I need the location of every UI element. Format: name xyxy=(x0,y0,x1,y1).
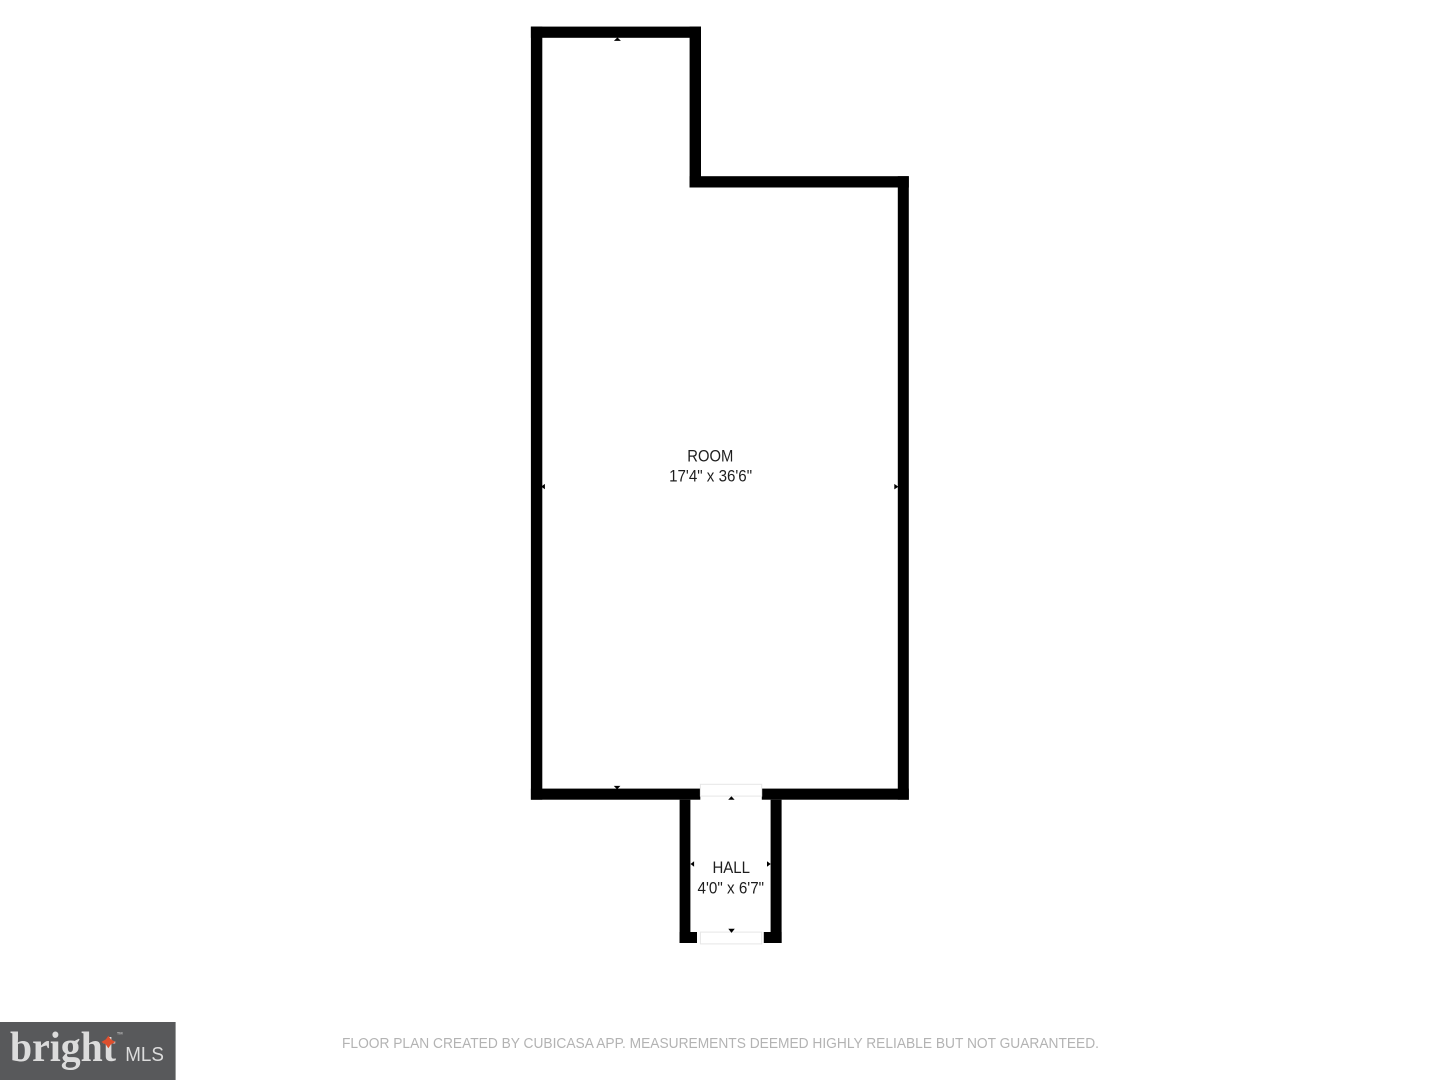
svg-text:bright: bright xyxy=(10,1025,116,1071)
svg-text:MLS: MLS xyxy=(125,1044,164,1066)
svg-text:HALL: HALL xyxy=(712,859,750,877)
svg-text:17'4" x 36'6": 17'4" x 36'6" xyxy=(669,468,752,486)
svg-text:4'0" x 6'7": 4'0" x 6'7" xyxy=(698,879,765,897)
svg-text:ROOM: ROOM xyxy=(687,447,733,465)
svg-text:FLOOR PLAN CREATED BY CUBICASA: FLOOR PLAN CREATED BY CUBICASA APP. MEAS… xyxy=(342,1036,1099,1052)
svg-text:™: ™ xyxy=(117,1032,124,1039)
